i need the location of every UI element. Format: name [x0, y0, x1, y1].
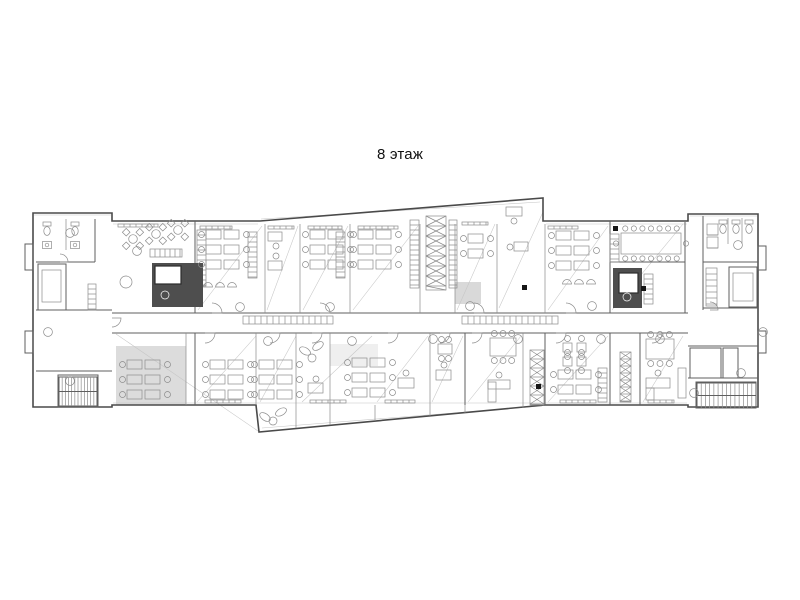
desk-clusters — [120, 230, 602, 399]
floor-plan-page: 8 этаж — [0, 0, 800, 600]
meeting-tables — [438, 331, 674, 374]
conference-table — [613, 226, 688, 261]
floor-plan-drawing — [0, 0, 800, 600]
